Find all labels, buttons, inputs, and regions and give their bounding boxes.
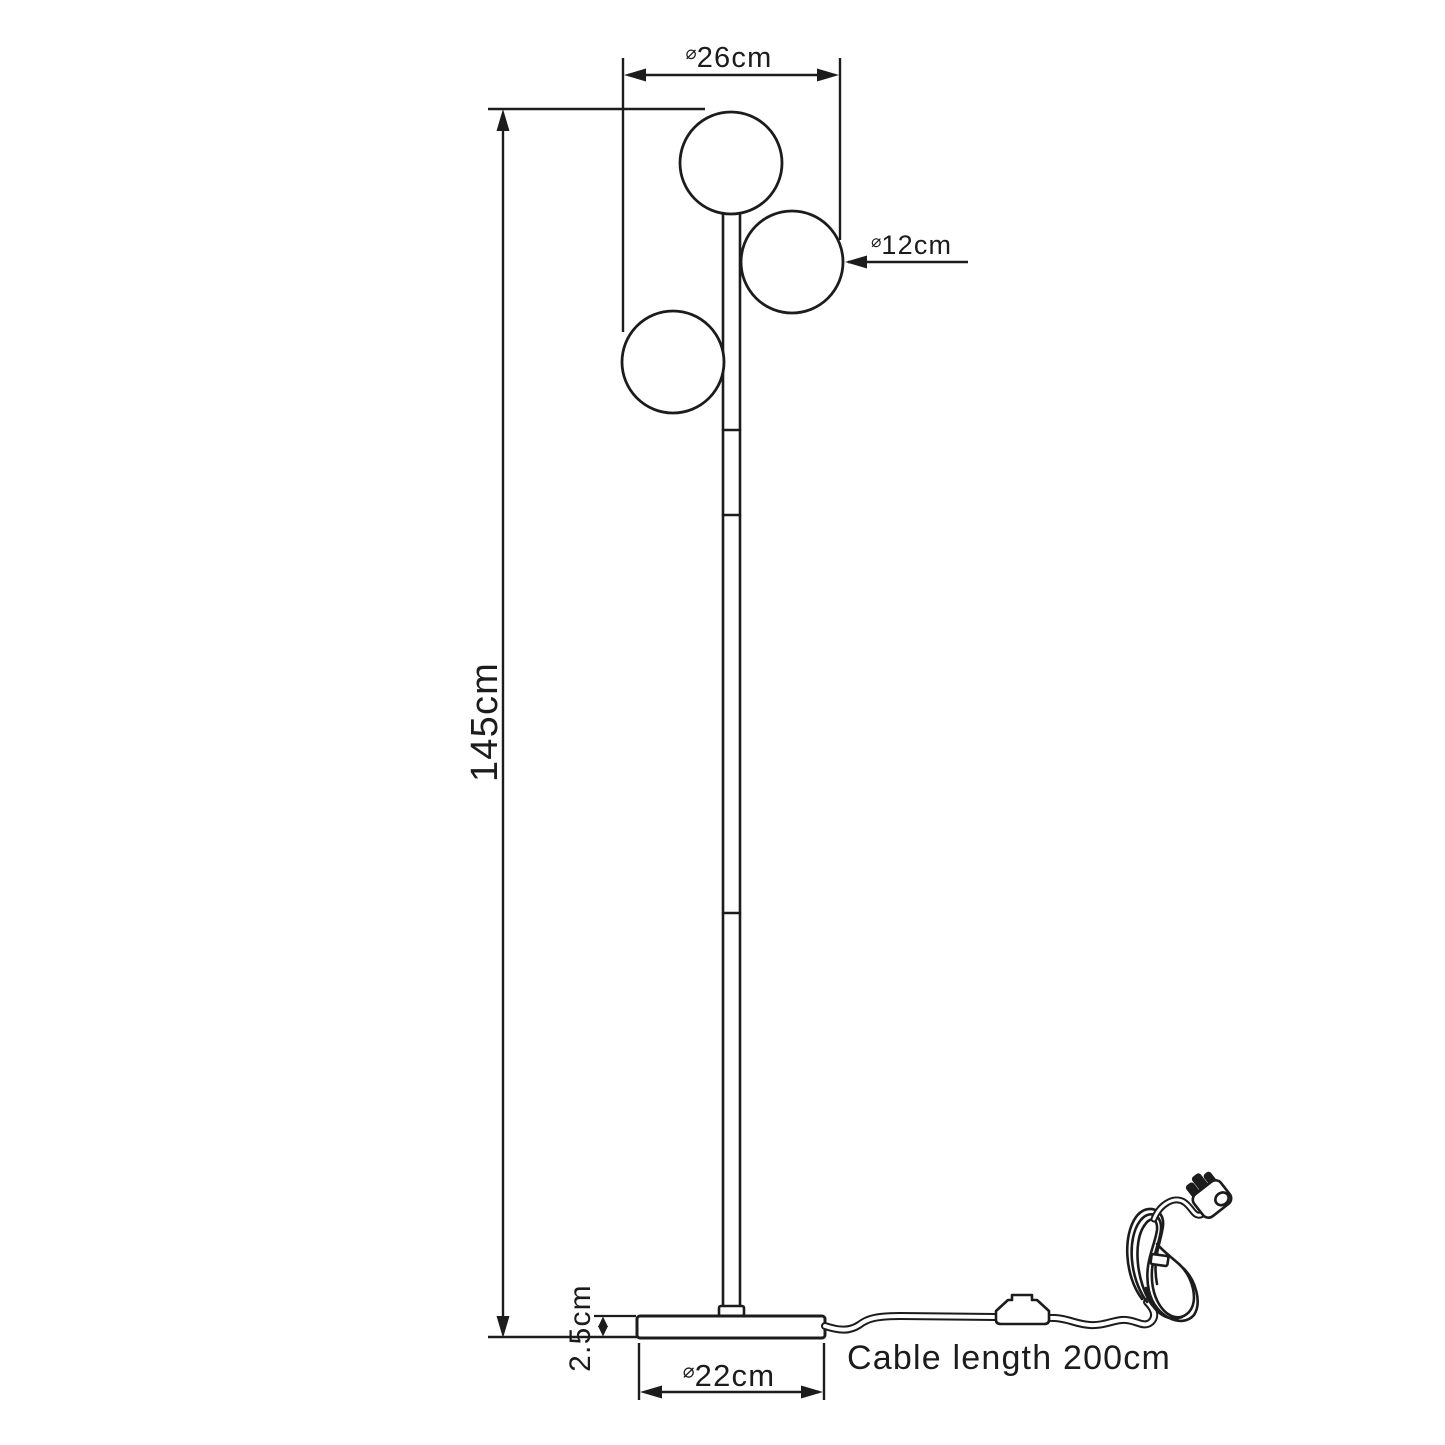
lamp-dimension-diagram: ⌀26cm ⌀12cm 145cm 2.5cm ⌀22cm Cable leng… — [0, 0, 1445, 1445]
top-globe — [680, 112, 782, 214]
arrow-left-icon — [624, 69, 646, 82]
label-globe-diameter: ⌀12cm — [871, 232, 952, 259]
lamp-line-art — [0, 0, 1445, 1445]
left-globe — [622, 311, 724, 413]
label-base-diameter: ⌀22cm — [683, 1360, 776, 1391]
pole-joint-lines — [723, 430, 740, 913]
arrow-left-icon — [640, 1386, 662, 1399]
arrow-down-icon — [497, 1316, 510, 1338]
inline-switch — [996, 1295, 1049, 1324]
height-dimension — [488, 109, 705, 1338]
cable-tie — [1150, 1254, 1168, 1266]
label-cable-length: Cable length 200cm — [847, 1341, 1171, 1375]
right-globe — [741, 211, 843, 313]
globe-diameter-value: 12cm — [881, 230, 952, 260]
arrow-up-icon — [598, 1317, 608, 1328]
arrow-right-icon — [801, 1386, 823, 1399]
diameter-symbol: ⌀ — [683, 1360, 695, 1383]
overall-diameter-value: 26cm — [697, 42, 773, 74]
base-height-dimension — [594, 1316, 636, 1337]
label-overall-diameter: ⌀26cm — [686, 44, 773, 73]
arrow-down-icon — [598, 1326, 608, 1337]
floor-lamp-drawing — [622, 112, 843, 1338]
power-cable-assembly — [825, 1166, 1234, 1329]
base-diameter-value: 22cm — [695, 1358, 776, 1393]
cable-coil — [1127, 1209, 1197, 1321]
label-base-height: 2.5cm — [566, 1284, 596, 1372]
diameter-symbol: ⌀ — [686, 43, 697, 64]
label-lamp-height: 145cm — [466, 662, 504, 782]
diameter-symbol: ⌀ — [871, 232, 881, 252]
power-cable — [825, 1302, 1154, 1330]
arrow-right-icon — [817, 69, 839, 82]
arrow-up-icon — [497, 109, 510, 131]
lamp-base — [637, 1316, 825, 1338]
lamp-pole — [723, 213, 740, 1307]
arrow-left-icon — [845, 256, 867, 269]
